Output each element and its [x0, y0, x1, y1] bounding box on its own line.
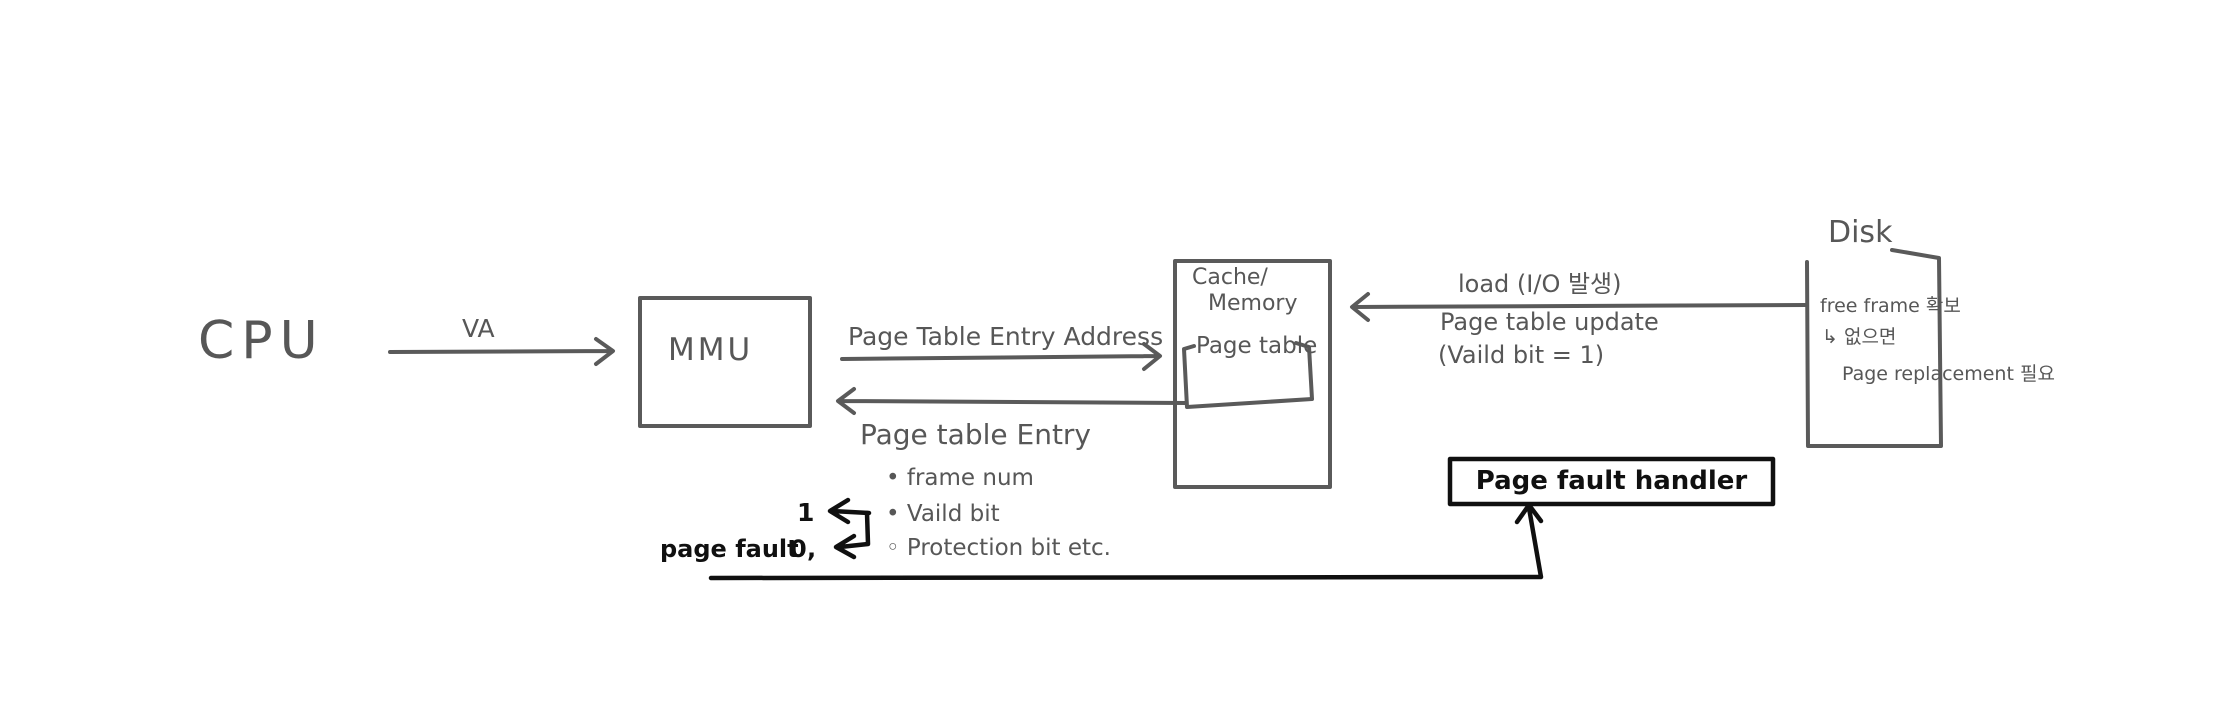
pte-return-arrow-label: Page table Entry [860, 420, 1091, 449]
disk-label: Disk [1828, 217, 1892, 249]
cpu-label: CPU [198, 314, 325, 369]
pte-field-item: • Vaild bit [886, 502, 1000, 526]
pte-address-arrow-label: Page Table Entry Address [848, 324, 1163, 350]
pte-return-arrow [838, 389, 1186, 413]
pte-field-item: • frame num [886, 466, 1034, 490]
disk-box [1807, 250, 1941, 446]
valid-bit-branch-arrows [830, 500, 869, 557]
page-fault-handler-label: Page fault handler [1450, 459, 1773, 504]
load-arrow-label-line1: load (I/O 발생) [1458, 272, 1622, 297]
cache-memory-label-line2: Memory [1208, 292, 1297, 315]
valid-bit-value-zero: 0 [790, 537, 807, 562]
diagram-strokes [0, 0, 2224, 709]
va-arrow-label: VA [462, 316, 495, 342]
disk-note-free-frame: free frame 확보 [1820, 297, 1961, 317]
load-arrow-label-line2: Page table update [1440, 310, 1659, 335]
pte-field-item: ◦ Protection bit etc. [886, 536, 1111, 560]
mmu-label: MMU [668, 334, 753, 367]
valid-bit-value-one: 1 [797, 500, 814, 526]
disk-note-page-replacement: Page replacement 필요 [1842, 365, 2055, 385]
va-arrow [390, 339, 613, 364]
load-arrow-label-line3: (Vaild bit = 1) [1438, 343, 1604, 368]
cache-memory-label-line1: Cache/ [1192, 266, 1268, 289]
page-table-label: Page table [1196, 334, 1317, 358]
disk-note-if-none: ↳ 없으면 [1822, 328, 1896, 348]
diagram-canvas: CPU VA MMU Page Table Entry Address Cach… [0, 0, 2224, 709]
